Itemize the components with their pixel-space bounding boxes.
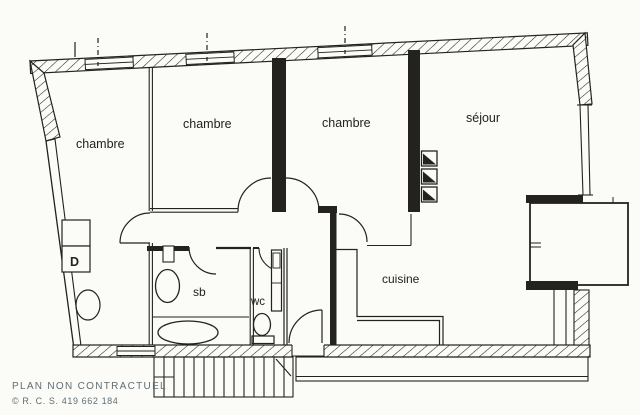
closet-label: D <box>70 255 79 269</box>
hall-seat <box>76 290 100 320</box>
rcs-registration: © R. C. S. 419 662 184 <box>12 396 118 406</box>
exterior-wall-right <box>554 33 593 345</box>
door-arc-bathroom <box>189 247 216 274</box>
entrance-door <box>289 310 322 343</box>
bedroom-left-label: chambre <box>76 137 125 151</box>
exterior-wall-bottom <box>73 344 590 358</box>
bedroom-right-label: chambre <box>322 116 371 130</box>
kitchen-label: cuisine <box>382 272 420 286</box>
terrace <box>296 357 588 381</box>
window-bottom <box>117 347 155 356</box>
wall-bedroom3-living <box>408 50 420 212</box>
wall-bedroom2-bedroom3 <box>272 58 286 212</box>
wall-bedroom1-bedroom2 <box>149 67 152 211</box>
window-living-room <box>577 105 593 195</box>
plan-disclaimer: PLAN NON CONTRACTUEL <box>12 381 167 392</box>
window-bedroom-left <box>85 57 133 70</box>
floor-plan-svg: chambre chambre chambre séjour cuisine s… <box>0 0 640 415</box>
washbasin <box>156 270 180 303</box>
exterior-stairs <box>154 357 293 397</box>
window-bedroom-middle <box>186 52 234 65</box>
bathroom-fixtures <box>156 270 219 345</box>
door-arc-bedroom-middle <box>238 178 271 211</box>
door-arc-kitchen <box>339 214 367 242</box>
shutter-symbols <box>422 151 438 202</box>
bedroom-middle-label: chambre <box>183 117 232 131</box>
corridor-wall <box>150 206 337 213</box>
exterior-wall-left <box>30 61 81 349</box>
exterior-wall-top <box>30 33 588 74</box>
toilet-fixture <box>252 314 274 344</box>
living-room-label: séjour <box>466 111 500 125</box>
entrance-opening <box>292 344 324 358</box>
door-arc-bedroom-right <box>286 178 319 211</box>
floor-plan-page: chambre chambre chambre séjour cuisine s… <box>0 0 640 415</box>
bathroom-label: sb <box>193 285 206 299</box>
bathtub <box>158 321 218 344</box>
toilet-label: wc <box>250 296 265 308</box>
balcony-annex <box>526 195 628 290</box>
door-bedroom-left <box>120 213 152 345</box>
kitchen-counter <box>337 250 444 346</box>
